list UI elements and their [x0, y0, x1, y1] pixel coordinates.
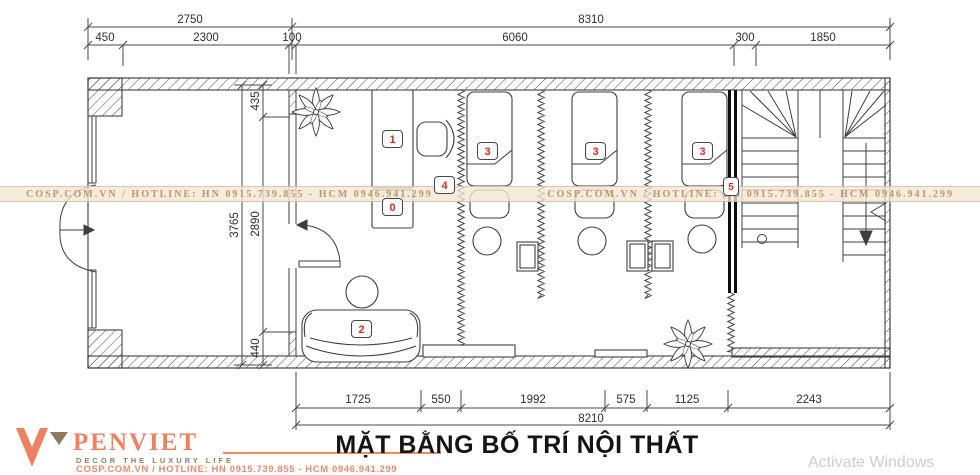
curtain-4 — [728, 293, 734, 352]
item-label-wall: 5 — [723, 177, 739, 196]
drawing-title: MẶT BẰNG BỐ TRÍ NỘI THẤT — [335, 431, 698, 460]
plant-top — [292, 88, 340, 136]
stool — [688, 225, 716, 253]
floor-plan-page: 2750 8310 450 2300 100 6060 300 1850 376… — [0, 0, 980, 475]
curtain-1 — [458, 90, 464, 353]
stool — [578, 227, 606, 255]
stool — [473, 227, 501, 255]
penviet-logo-icon — [12, 423, 70, 471]
corner-column-bottom-left — [88, 330, 122, 368]
activate-windows-text: Activate Windows — [808, 454, 934, 472]
dim-2243: 2243 — [796, 394, 822, 406]
entry-facade — [60, 116, 96, 328]
item-label-sofa: 2 — [351, 320, 372, 338]
round-table — [346, 276, 378, 308]
item-label-shelf: 4 — [434, 176, 455, 194]
dim-8310: 8310 — [578, 14, 604, 26]
watermark-band: COSP.COM.VN / HOTLINE: HN 0915.739.855 -… — [0, 186, 980, 202]
dim-2890: 2890 — [250, 211, 262, 237]
desk-chair — [417, 120, 454, 158]
staircase — [742, 90, 886, 262]
floor-plan-drawing: 2750 8310 450 2300 100 6060 300 1850 376… — [0, 0, 980, 475]
item-label-bed-1: 3 — [477, 142, 498, 160]
dim-1850: 1850 — [810, 32, 836, 44]
dim-435: 435 — [250, 91, 262, 110]
plant-bottom — [664, 320, 712, 368]
dim-575: 575 — [616, 394, 635, 406]
spa-bed-1 — [467, 92, 512, 255]
interior-door — [297, 220, 340, 267]
floor-mat — [595, 350, 647, 357]
top-chain-ticks — [84, 41, 894, 74]
dim-2300: 2300 — [193, 32, 219, 44]
corner-column-top-left — [88, 78, 122, 116]
watermark-text: COSP.COM.VN / HOTLINE: HN 0915.739.855 -… — [547, 189, 954, 200]
dim-3765: 3765 — [229, 212, 241, 238]
brand-contact: COSP.COM.VN / HOTLINE: HN 0915.739.855 -… — [76, 464, 397, 475]
item-label-cabinet: 0 — [382, 198, 403, 216]
dim-1125: 1125 — [675, 394, 700, 406]
dim-550: 550 — [431, 394, 450, 406]
dim-450: 450 — [95, 32, 114, 44]
window-top — [88, 116, 96, 183]
dim-1725: 1725 — [345, 394, 371, 406]
low-cabinet — [423, 345, 515, 357]
dim-8210: 8210 — [578, 413, 604, 425]
item-label-bed-2: 3 — [585, 142, 606, 160]
window-bottom — [88, 270, 96, 328]
item-label-bed-3: 3 — [692, 142, 713, 160]
brand-name: PENVIET — [73, 429, 198, 457]
dim-1992: 1992 — [520, 394, 546, 406]
spa-bed-2 — [572, 92, 617, 255]
spa-bed-3 — [682, 92, 727, 253]
spa-cubicles — [467, 92, 727, 271]
dim-440: 440 — [250, 338, 262, 357]
dim-6060: 6060 — [502, 32, 528, 44]
watermark-text: COSP.COM.VN / HOTLINE: HN 0915.739.855 -… — [26, 189, 433, 200]
dim-300: 300 — [735, 32, 754, 44]
stair-winders — [742, 91, 886, 137]
item-label-desk: 1 — [382, 130, 403, 148]
dim-100: 100 — [282, 32, 301, 44]
dim-2750: 2750 — [177, 14, 203, 26]
logo-triangle-accent — [50, 432, 68, 445]
